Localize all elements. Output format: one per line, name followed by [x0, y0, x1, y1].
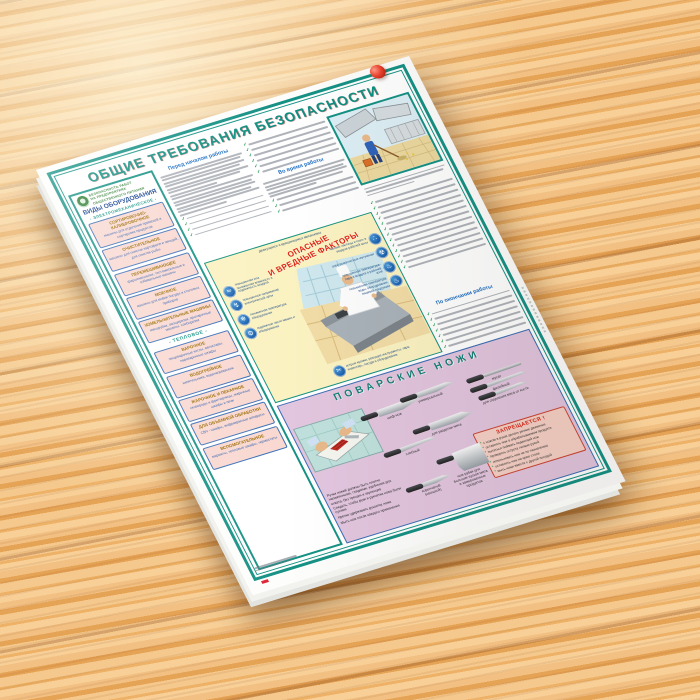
knife-item: хлебный [391, 438, 432, 460]
knife-item: коренчатый (овощной) [409, 474, 452, 500]
knife-handle [435, 455, 454, 465]
imprint-logo [261, 580, 269, 584]
knife-item: для разделки мяса [423, 413, 465, 438]
forbidden-box: ЗАПРЕЩАЕТСЯ ! ▪ с ножом в руках делать р… [472, 406, 587, 479]
knife-handle [411, 425, 430, 435]
knife-item: универсальный [408, 383, 449, 406]
hazard-icon: ☢ [373, 245, 390, 259]
knife-handle [465, 374, 484, 384]
knife-tips: Ручки ножей должны быть плотно насаженны… [325, 471, 415, 527]
